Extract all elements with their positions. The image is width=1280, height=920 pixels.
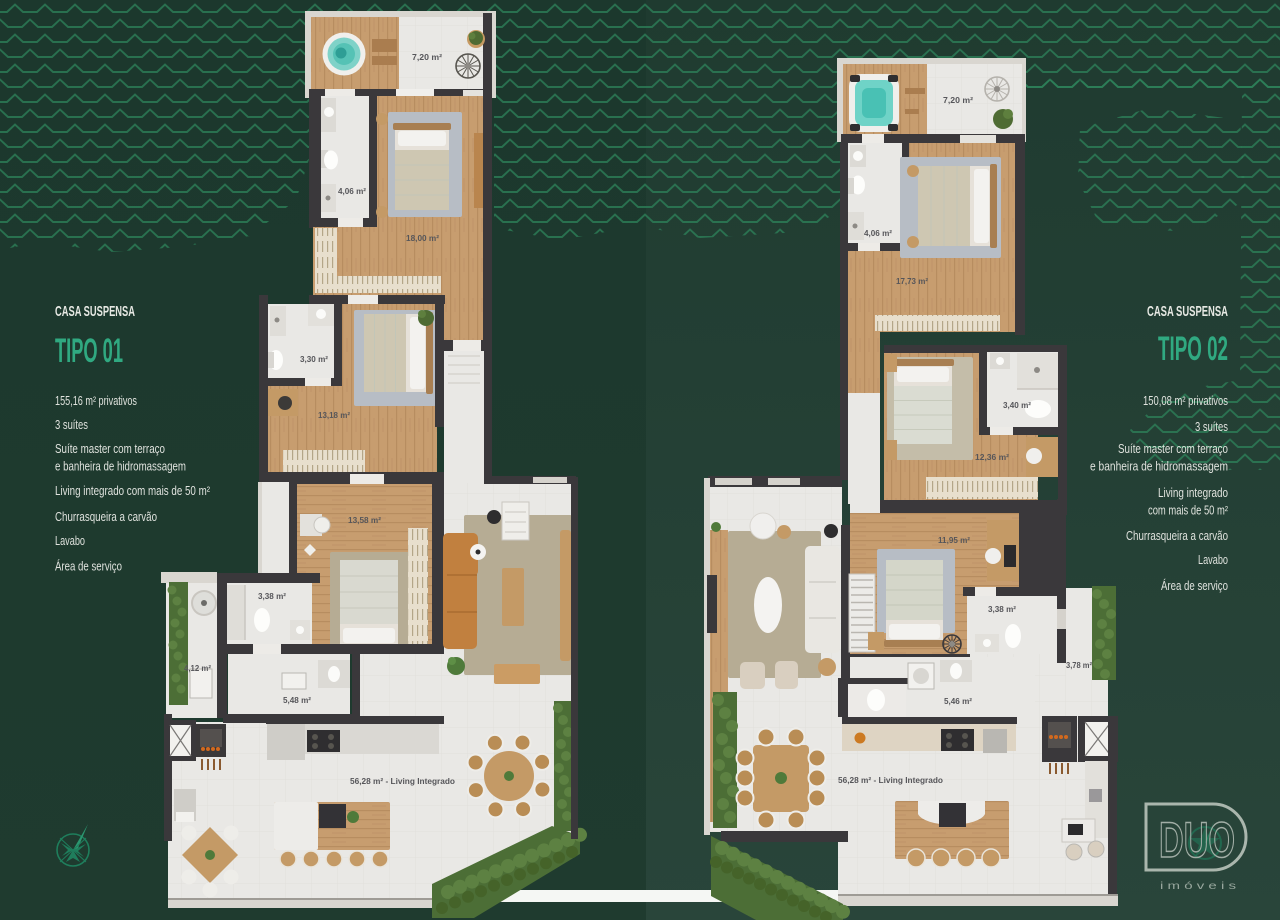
svg-text:18,00 m²: 18,00 m²	[406, 234, 439, 243]
svg-text:4,12 m²: 4,12 m²	[184, 664, 211, 673]
svg-text:Living integrado com mais de 5: Living integrado com mais de 50 m²	[55, 484, 210, 498]
svg-text:Lavabo: Lavabo	[1198, 553, 1228, 567]
svg-text:CASA SUSPENSA: CASA SUSPENSA	[1147, 303, 1228, 320]
svg-text:4,06 m²: 4,06 m²	[864, 229, 892, 238]
svg-text:5,48 m²: 5,48 m²	[283, 696, 311, 705]
svg-text:12,36 m²: 12,36 m²	[975, 453, 1009, 462]
svg-text:CASA SUSPENSA: CASA SUSPENSA	[55, 303, 135, 320]
svg-text:TIPO 02: TIPO 02	[1158, 330, 1228, 368]
svg-text:3,38 m²: 3,38 m²	[258, 592, 286, 601]
svg-text:3,40 m²: 3,40 m²	[1003, 401, 1031, 410]
svg-text:4,06 m²: 4,06 m²	[338, 187, 366, 196]
svg-text:7,20 m²: 7,20 m²	[412, 53, 442, 62]
svg-text:3,78 m²: 3,78 m²	[1066, 661, 1092, 670]
svg-text:13,18 m²: 13,18 m²	[318, 411, 350, 420]
svg-text:Suíte master com terraço: Suíte master com terraço	[55, 442, 165, 456]
svg-text:TIPO 01: TIPO 01	[55, 332, 123, 370]
svg-text:7,20 m²: 7,20 m²	[943, 96, 973, 105]
svg-text:Lavabo: Lavabo	[55, 534, 85, 548]
svg-text:3,38 m²: 3,38 m²	[988, 605, 1016, 614]
svg-text:i m ó v e i s: i m ó v e i s	[1160, 881, 1236, 892]
svg-text:DUO: DUO	[1159, 812, 1235, 868]
svg-text:e banheira de hidromassagem: e banheira de hidromassagem	[1090, 460, 1228, 474]
svg-text:e banheira de hidromassagem: e banheira de hidromassagem	[55, 460, 186, 474]
svg-text:com mais de 50 m²: com mais de 50 m²	[1148, 504, 1228, 518]
svg-text:3 suítes: 3 suítes	[1195, 420, 1228, 434]
svg-text:150,08 m² privativos: 150,08 m² privativos	[1143, 394, 1228, 408]
svg-text:Área de serviço: Área de serviço	[55, 559, 122, 574]
svg-text:56,28 m² - Living Integrado: 56,28 m² - Living Integrado	[350, 777, 455, 786]
svg-text:Churrasqueira a carvão: Churrasqueira a carvão	[1126, 529, 1228, 543]
svg-text:155,16 m² privativos: 155,16 m² privativos	[55, 394, 137, 408]
svg-text:17,73 m²: 17,73 m²	[896, 277, 928, 286]
svg-text:3 suítes: 3 suítes	[55, 418, 88, 432]
svg-text:Área de serviço: Área de serviço	[1161, 578, 1228, 593]
svg-text:11,95 m²: 11,95 m²	[938, 536, 970, 545]
svg-text:56,28 m² - Living Integrado: 56,28 m² - Living Integrado	[838, 776, 943, 785]
svg-text:5,46 m²: 5,46 m²	[944, 697, 972, 706]
svg-text:Suíte master com terraço: Suíte master com terraço	[1118, 442, 1228, 456]
svg-text:13,58 m²: 13,58 m²	[348, 516, 381, 525]
svg-text:3,30 m²: 3,30 m²	[300, 355, 328, 364]
svg-text:Churrasqueira a carvão: Churrasqueira a carvão	[55, 510, 157, 524]
svg-text:Living integrado: Living integrado	[1158, 486, 1228, 500]
